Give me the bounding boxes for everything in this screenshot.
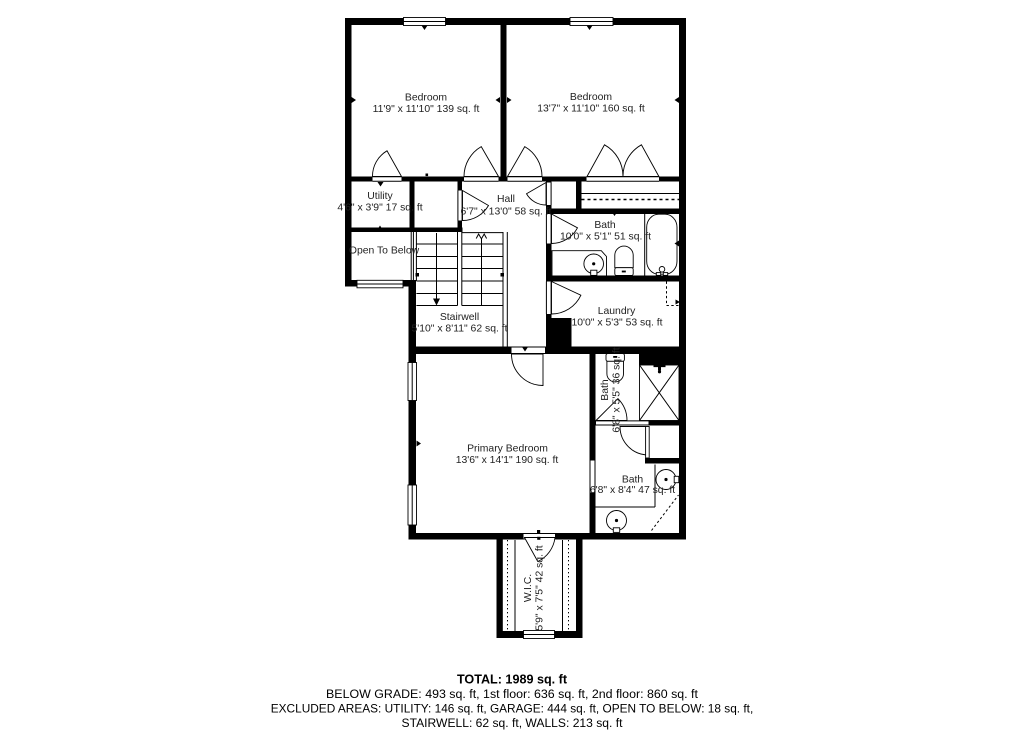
svg-text:Bath: Bath	[600, 379, 611, 401]
svg-text:Primary Bedroom: Primary Bedroom	[467, 444, 548, 455]
svg-text:6'8" x 5'5" 36 sq. ft: 6'8" x 5'5" 36 sq. ft	[612, 347, 623, 432]
svg-text:13'6" x 14'1" 190 sq. ft: 13'6" x 14'1" 190 sq. ft	[456, 455, 559, 466]
svg-text:Bedroom: Bedroom	[405, 93, 447, 104]
svg-text:Bath: Bath	[594, 220, 616, 231]
svg-text:Bedroom: Bedroom	[570, 92, 612, 103]
svg-text:13'7" x 11'10" 160 sq. ft: 13'7" x 11'10" 160 sq. ft	[537, 103, 645, 114]
svg-text:STAIRWELL: 62 sq. ft, WALLS: 2: STAIRWELL: 62 sq. ft, WALLS: 213 sq. ft	[402, 716, 624, 730]
svg-text:TOTAL: 1989 sq. ft: TOTAL: 1989 sq. ft	[457, 673, 568, 687]
svg-text:Stairwell: Stairwell	[440, 312, 479, 323]
svg-text:EXCLUDED AREAS: UTILITY: 146 s: EXCLUDED AREAS: UTILITY: 146 sq. ft, GAR…	[271, 702, 754, 716]
svg-text:Open To Below: Open To Below	[349, 246, 420, 257]
svg-text:10'0" x 5'1" 51 sq. ft: 10'0" x 5'1" 51 sq. ft	[560, 231, 651, 242]
svg-text:Utility: Utility	[367, 191, 393, 202]
svg-text:5'10" x 8'11" 62 sq. ft: 5'10" x 8'11" 62 sq. ft	[411, 323, 507, 334]
svg-text:11'9" x 11'10" 139 sq. ft: 11'9" x 11'10" 139 sq. ft	[373, 104, 480, 115]
svg-text:Bath: Bath	[622, 475, 644, 486]
svg-text:6'7" x 13'0" 58 sq. ft: 6'7" x 13'0" 58 sq. ft	[460, 207, 551, 218]
svg-text:Hall: Hall	[497, 194, 515, 205]
svg-text:10'0" x 5'3" 53 sq. ft: 10'0" x 5'3" 53 sq. ft	[571, 318, 662, 329]
svg-text:BELOW GRADE: 493 sq. ft, 1st f: BELOW GRADE: 493 sq. ft, 1st floor: 636 …	[326, 687, 698, 701]
svg-text:Laundry: Laundry	[598, 306, 636, 317]
svg-text:6'8" x 8'4" 47 sq. ft: 6'8" x 8'4" 47 sq. ft	[590, 485, 675, 496]
svg-text:5'9" x 7'5" 42 sq. ft: 5'9" x 7'5" 42 sq. ft	[535, 545, 546, 630]
svg-text:W.I.C.: W.I.C.	[523, 574, 534, 602]
svg-text:4'6" x 3'9" 17 sq. ft: 4'6" x 3'9" 17 sq. ft	[337, 202, 422, 213]
